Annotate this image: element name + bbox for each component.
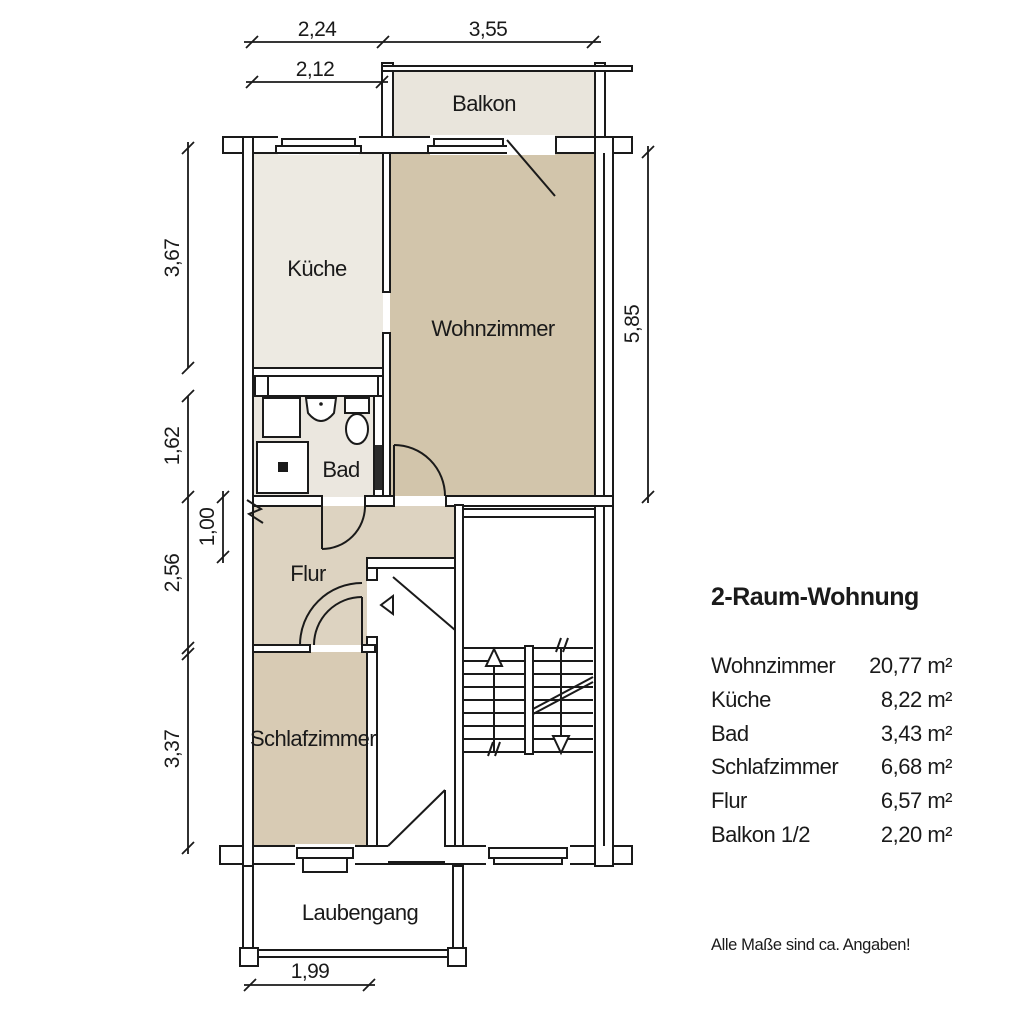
flur-floor-upper	[253, 506, 455, 558]
floor-plan-page: Balkon Küche Wohnzimmer Bad Flur Schlafz…	[0, 0, 1024, 1024]
legend-row-value: 3,43 m²	[881, 717, 952, 751]
balkon-wall-left	[382, 63, 393, 137]
dim-label-bottom: 1,99	[291, 960, 329, 983]
balkon-door-gap	[507, 135, 555, 155]
washing-machine-icon	[263, 398, 300, 437]
balkon-parapet	[382, 66, 632, 71]
flur-label: Flur	[290, 561, 326, 586]
balkon-label: Balkon	[452, 91, 516, 116]
legend-row: Bad 3,43 m²	[711, 717, 952, 751]
wohnzimmer-label: Wohnzimmer	[431, 316, 554, 341]
dim-label-left-3: 2,56	[161, 554, 184, 592]
wall-stairwell-left	[455, 505, 463, 846]
legend-row-label: Balkon 1/2	[711, 818, 810, 852]
legend-row: Flur 6,57 m²	[711, 784, 952, 818]
dim-label-niche: 1,00	[196, 508, 219, 546]
wall-stairwell-top	[455, 509, 595, 517]
legend-row: Balkon 1/2 2,20 m²	[711, 818, 952, 852]
legend-row-label: Schlafzimmer	[711, 750, 838, 784]
legend-row-label: Flur	[711, 784, 747, 818]
toilet-icon	[345, 398, 369, 444]
entrance-door-leaf	[393, 577, 455, 630]
stair-center-wall	[525, 646, 533, 754]
entrance-direction-icon	[381, 596, 393, 614]
dim-label-left-1: 3,67	[161, 239, 184, 277]
legend-panel: 2-Raum-Wohnung Wohnzimmer 20,77 m² Küche…	[711, 583, 952, 852]
legend-row-label: Bad	[711, 717, 749, 751]
wall-kueche-bottom	[253, 368, 383, 376]
installation-shaft	[255, 376, 378, 396]
wall-wohnzimmer-bottom	[446, 496, 613, 506]
bad-label: Bad	[322, 457, 359, 482]
laubengang-railing	[243, 950, 463, 957]
wall-landing-top	[367, 558, 463, 568]
legend-row-value: 6,68 m²	[881, 750, 952, 784]
floor-plan-canvas: Balkon Küche Wohnzimmer Bad Flur Schlafz…	[0, 0, 1024, 1024]
wall-flur-top-1	[253, 496, 322, 506]
wall-divider-upper	[383, 153, 390, 292]
dim-label-left-2: 1,62	[161, 427, 184, 465]
laubengang-wall-right	[453, 866, 463, 957]
kueche-label: Küche	[287, 256, 347, 281]
wall-flur-top-2	[365, 496, 394, 506]
bad-sliding-door-slab	[375, 445, 382, 490]
dim-label-left-4: 3,37	[161, 730, 184, 768]
balkon-wall-right	[595, 63, 605, 137]
legend-rows: Wohnzimmer 20,77 m² Küche 8,22 m² Bad 3,…	[711, 649, 952, 852]
entrance-door	[381, 577, 455, 630]
laubengang-door-swing	[388, 790, 445, 846]
shower-icon	[257, 442, 308, 493]
legend-row-label: Wohnzimmer	[711, 649, 835, 683]
legend-row-value: 2,20 m²	[881, 818, 952, 852]
legend-title: 2-Raum-Wohnung	[711, 583, 952, 612]
legend-row-value: 8,22 m²	[881, 683, 952, 717]
dim-label-right: 5,85	[621, 305, 644, 343]
dim-label-top-inner: 2,12	[296, 58, 334, 81]
legend-row: Küche 8,22 m²	[711, 683, 952, 717]
stair-handrail-inner	[533, 677, 593, 709]
wall-divider-lower	[383, 333, 390, 497]
wall-schlafzimmer-top-2	[362, 645, 375, 652]
legend-row: Schlafzimmer 6,68 m²	[711, 750, 952, 784]
dim-label-top-right: 3,55	[469, 18, 507, 41]
legend-row: Wohnzimmer 20,77 m²	[711, 649, 952, 683]
laubengang-post-right	[448, 948, 466, 966]
dim-label-top-left: 2,24	[298, 18, 337, 41]
legend-row-label: Küche	[711, 683, 771, 717]
legend-row-value: 20,77 m²	[869, 649, 952, 683]
wall-landing-left-upper	[367, 568, 377, 580]
laubengang-label: Laubengang	[302, 900, 418, 925]
schlafzimmer-label: Schlafzimmer	[250, 726, 376, 751]
staircase	[463, 638, 593, 756]
legend-note: Alle Maße sind ca. Angaben!	[711, 936, 910, 955]
laubengang-wall-left	[243, 866, 253, 957]
laubengang-door-gap	[388, 843, 445, 861]
laubengang-post-left	[240, 948, 258, 966]
legend-row-value: 6,57 m²	[881, 784, 952, 818]
wall-schlafzimmer-top-1	[253, 645, 310, 652]
